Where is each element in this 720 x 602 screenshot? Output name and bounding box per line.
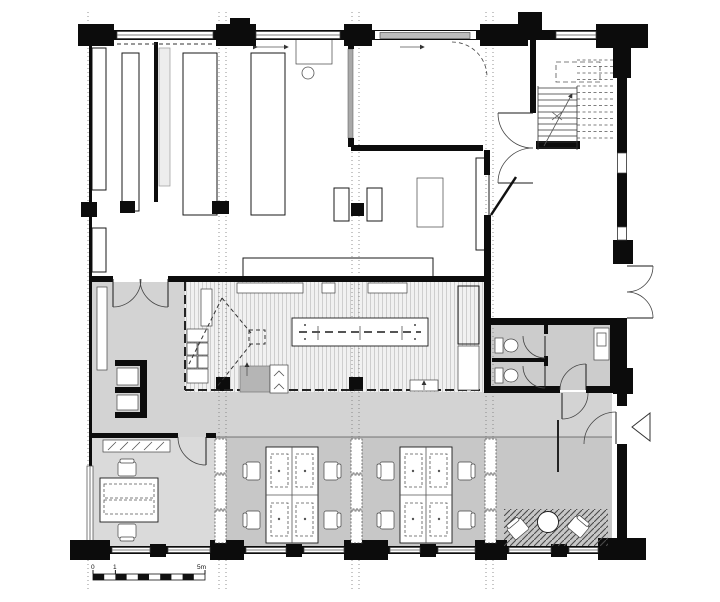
scale-label-1: 1 (113, 564, 117, 571)
pilaster (81, 202, 97, 217)
rack-row-horizontal (243, 258, 433, 277)
column (212, 201, 229, 214)
pilaster (344, 24, 372, 46)
pilaster (286, 544, 302, 557)
hall-east-wall-upper (484, 150, 490, 175)
entrance-direction-arrow (632, 413, 650, 441)
scale-label-0: 0 (91, 564, 95, 571)
chimney (230, 18, 250, 32)
top-middle-room (348, 40, 487, 151)
hall-east-wall-lower (484, 215, 491, 393)
toilet (495, 368, 518, 383)
left-office-wall-stub (206, 433, 216, 438)
rack-small-left (334, 188, 349, 221)
hall-column-round (302, 67, 314, 79)
stair-room-wall (530, 40, 536, 113)
wc-south-wall-east (586, 386, 612, 393)
radiator (97, 287, 107, 370)
pilaster (344, 540, 388, 560)
scale-label-5m: 5m (197, 564, 206, 571)
east-exterior-double-door (627, 266, 653, 318)
toilet (495, 338, 518, 353)
counter (240, 366, 270, 392)
pilaster (70, 540, 110, 560)
window (618, 153, 627, 173)
pilaster (78, 24, 114, 46)
pilaster (150, 544, 166, 557)
chevron-cabinet (270, 365, 288, 393)
workshop-right-cabinet-lower (458, 346, 479, 390)
workshop-shelf-small (322, 283, 335, 293)
hall-workbench (296, 38, 332, 64)
entrance-opening (616, 406, 628, 444)
pilaster (420, 544, 436, 557)
hall-south-wall-west (91, 276, 113, 282)
rack-row-2 (122, 53, 139, 211)
stair-direction-arrow (544, 94, 572, 146)
gray-partition (348, 49, 353, 138)
staircase (538, 60, 613, 150)
washbasin (594, 328, 609, 360)
rail-wall (154, 42, 158, 202)
rack-row-wall-lower (92, 228, 106, 272)
sliding-door-leaf (380, 33, 470, 39)
column (351, 203, 364, 216)
storage-racks (92, 38, 489, 277)
column (349, 377, 363, 391)
floor-plan-drawing: 0 1 5m (0, 0, 720, 602)
circulation-floor-band (91, 392, 612, 437)
lounge-area (504, 509, 608, 546)
kitchenette-unit (115, 360, 147, 418)
hall-table (417, 178, 443, 227)
partition-strip (215, 439, 226, 543)
wc-east-wall (610, 318, 617, 393)
window (618, 227, 627, 240)
stair-dashed-landing (556, 62, 600, 82)
wc-cubicle-divider (492, 358, 545, 362)
hall-south-wall (168, 276, 490, 282)
rack-row-4-double (251, 53, 285, 215)
wc-wall-stub (544, 325, 548, 334)
tall-cabinet (201, 289, 212, 326)
rack-strip-slim (159, 48, 170, 186)
wc-north-wall (484, 318, 612, 325)
floor-plan-page: 0 1 5m (0, 0, 720, 602)
partition-strip (485, 439, 496, 543)
column (120, 201, 135, 213)
pilaster (613, 30, 631, 78)
workshop-shelf (368, 283, 407, 293)
pilaster (613, 240, 633, 264)
rack-small-right (367, 188, 382, 221)
round-table (538, 512, 559, 533)
rack-row-3-double (183, 53, 217, 215)
curtain-swing-dashed (452, 42, 487, 77)
rack-row-wall-upper (92, 48, 106, 190)
stairhall-double-door (498, 113, 533, 183)
wc-south-wall-west (484, 386, 560, 393)
roof-protrusion (518, 12, 542, 32)
workshop-shelf (237, 283, 303, 293)
scale-bar: 0 1 5m (91, 564, 206, 580)
left-office-wall (91, 433, 178, 438)
room-south-wall (351, 145, 483, 151)
double-door-opening (616, 264, 628, 318)
partition-strip (351, 439, 362, 543)
